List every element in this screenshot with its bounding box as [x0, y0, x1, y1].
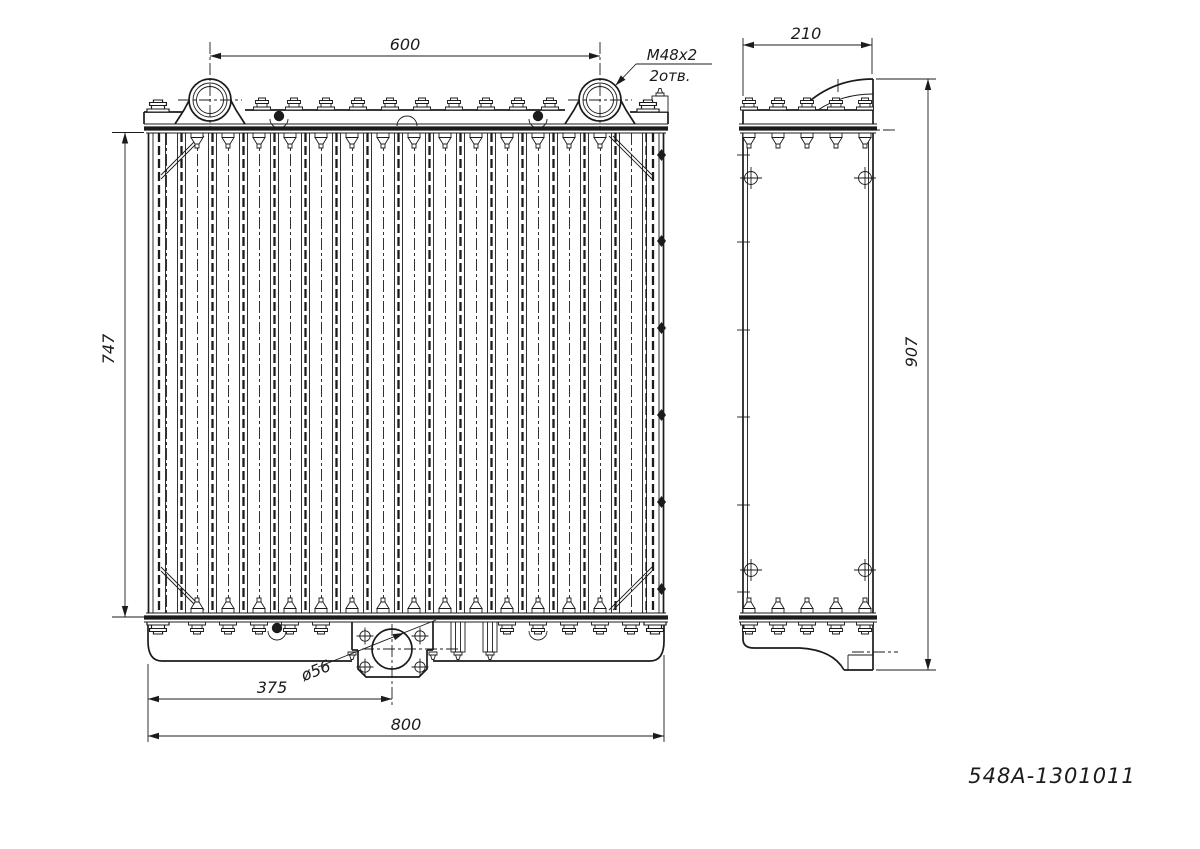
vent-cap — [270, 111, 288, 128]
dim-depth: 210 — [743, 24, 872, 96]
side-view — [737, 79, 898, 670]
side-bottom-header-band — [739, 613, 877, 622]
thread-holes-label: 2отв. — [649, 67, 690, 85]
radiator-core — [166, 133, 647, 613]
dim-core-height: 747 — [99, 133, 144, 618]
dim-text-375: 375 — [257, 678, 288, 697]
outlet-pipe-elbow — [800, 648, 844, 670]
tank-dome-boss — [397, 116, 417, 126]
side-top-tank — [743, 79, 898, 130]
dim-text-907: 907 — [902, 336, 921, 367]
callout-neck-thread: M48x2 2отв. — [613, 46, 712, 88]
dim-text-747: 747 — [99, 333, 118, 364]
dim-overall-height: 907 — [876, 79, 936, 670]
hanger-bracket — [483, 622, 497, 660]
drawing-sheet: 600 M48x2 2отв. 747 375 ø56 800 — [0, 0, 1200, 849]
channel-diamond-markers — [657, 149, 666, 595]
side-top-header-band — [739, 124, 877, 133]
dim-text-600: 600 — [390, 35, 421, 54]
engineering-drawing: 600 M48x2 2отв. 747 375 ø56 800 — [0, 0, 1200, 849]
thread-label: M48x2 — [647, 46, 697, 64]
right-side-channel — [647, 133, 664, 613]
left-side-channel — [149, 133, 166, 613]
side-plate — [737, 133, 876, 613]
vent-cap — [529, 111, 547, 128]
outlet-flange — [348, 622, 458, 677]
hanger-bracket — [451, 622, 465, 660]
flange-hole — [412, 628, 429, 645]
flange-hole — [357, 628, 374, 645]
front-view — [144, 79, 668, 677]
top-tank — [144, 79, 668, 128]
bottom-header-band — [144, 613, 668, 622]
dim-text-800: 800 — [391, 715, 422, 734]
dim-outlet-offset: 375 — [148, 624, 392, 742]
side-top-bolt-row — [741, 98, 874, 148]
side-bottom-tank — [743, 622, 898, 670]
part-number-label: 548A-1301011 — [968, 764, 1136, 788]
top-header-band — [144, 124, 668, 133]
dim-text-210: 210 — [791, 24, 822, 43]
